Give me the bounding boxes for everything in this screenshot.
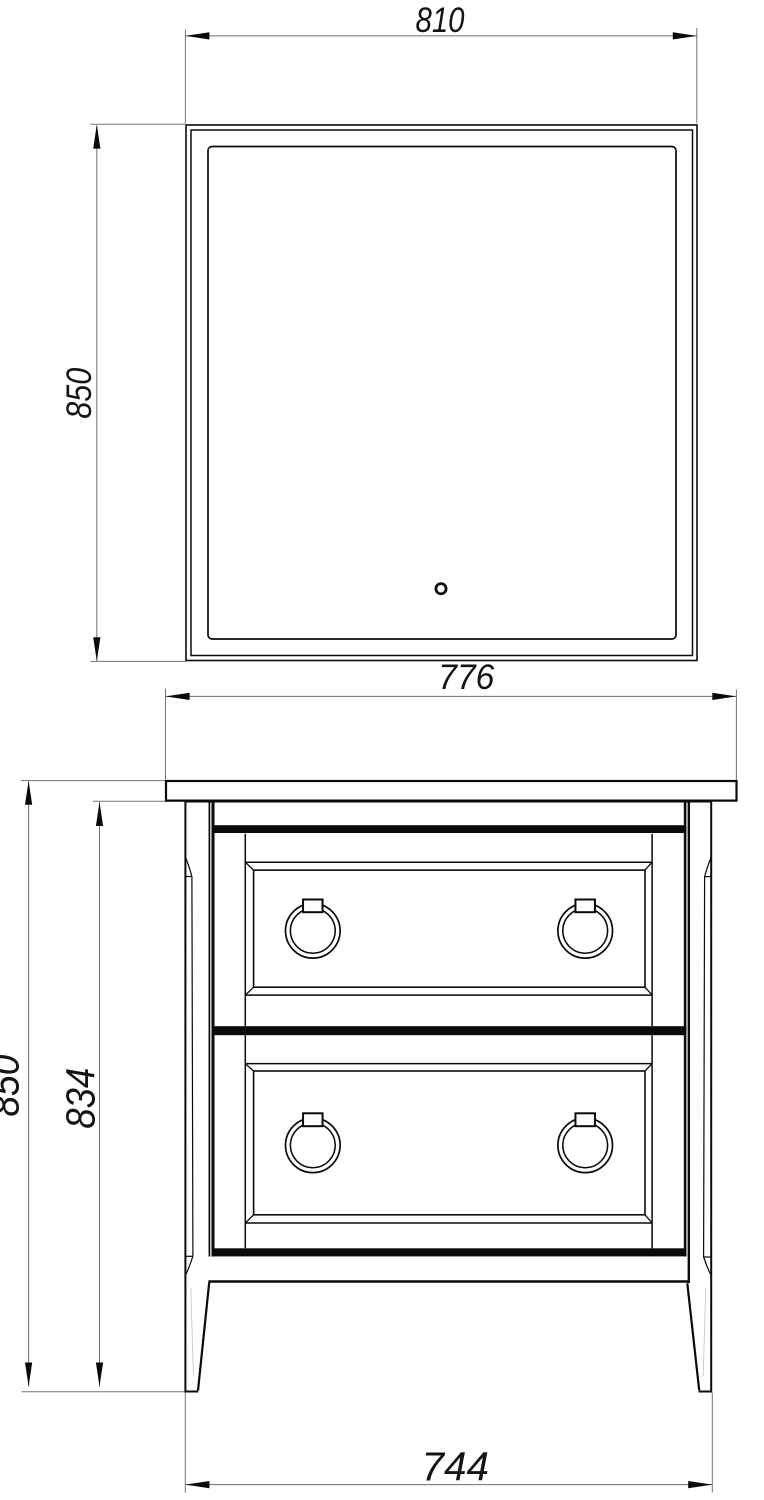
svg-text:850: 850 — [59, 368, 99, 419]
svg-text:776: 776 — [438, 657, 494, 697]
svg-text:834: 834 — [57, 1068, 103, 1129]
svg-text:744: 744 — [422, 1443, 490, 1489]
svg-text:810: 810 — [416, 0, 465, 40]
svg-text:850: 850 — [0, 1054, 28, 1116]
